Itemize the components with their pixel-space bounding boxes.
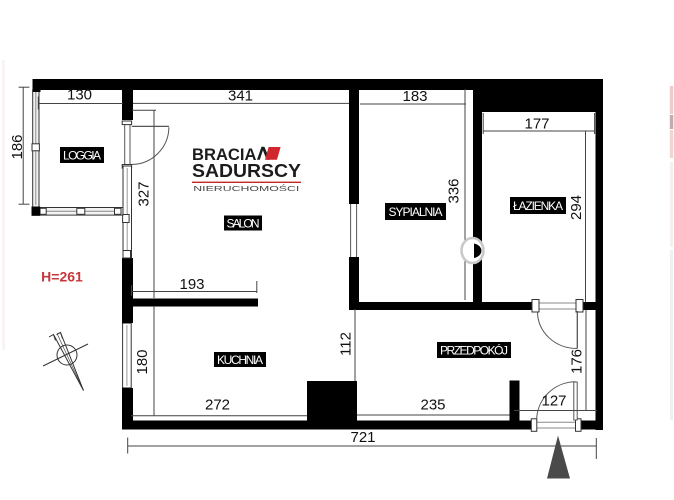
svg-text:235: 235 (420, 397, 445, 414)
svg-text:176: 176 (569, 349, 586, 374)
svg-text:186: 186 (9, 134, 26, 159)
svg-text:336: 336 (446, 178, 463, 203)
svg-text:272: 272 (205, 397, 230, 414)
svg-text:SYPIALNIA: SYPIALNIA (389, 205, 443, 219)
svg-text:112: 112 (338, 332, 355, 356)
svg-text:294: 294 (568, 195, 585, 220)
svg-text:NIERUCHOMOŚCI: NIERUCHOMOŚCI (193, 184, 299, 193)
svg-text:ŁAZIENKA: ŁAZIENKA (513, 199, 563, 213)
svg-text:KUCHNIA: KUCHNIA (217, 353, 263, 367)
svg-text:H=261: H=261 (41, 269, 83, 285)
svg-text:SADURSCY: SADURSCY (192, 161, 301, 181)
svg-text:327: 327 (136, 181, 153, 206)
svg-text:PRZEDPOKÓJ: PRZEDPOKÓJ (440, 343, 508, 358)
svg-text:130: 130 (67, 87, 92, 104)
svg-text:721: 721 (350, 429, 375, 446)
svg-text:SALON: SALON (227, 217, 260, 231)
svg-text:127: 127 (541, 393, 566, 410)
svg-text:341: 341 (228, 88, 253, 105)
svg-text:177: 177 (524, 116, 549, 133)
svg-text:183: 183 (402, 88, 427, 105)
svg-text:180: 180 (134, 349, 151, 374)
svg-text:193: 193 (179, 276, 204, 293)
svg-text:LOGGIA: LOGGIA (63, 149, 101, 163)
